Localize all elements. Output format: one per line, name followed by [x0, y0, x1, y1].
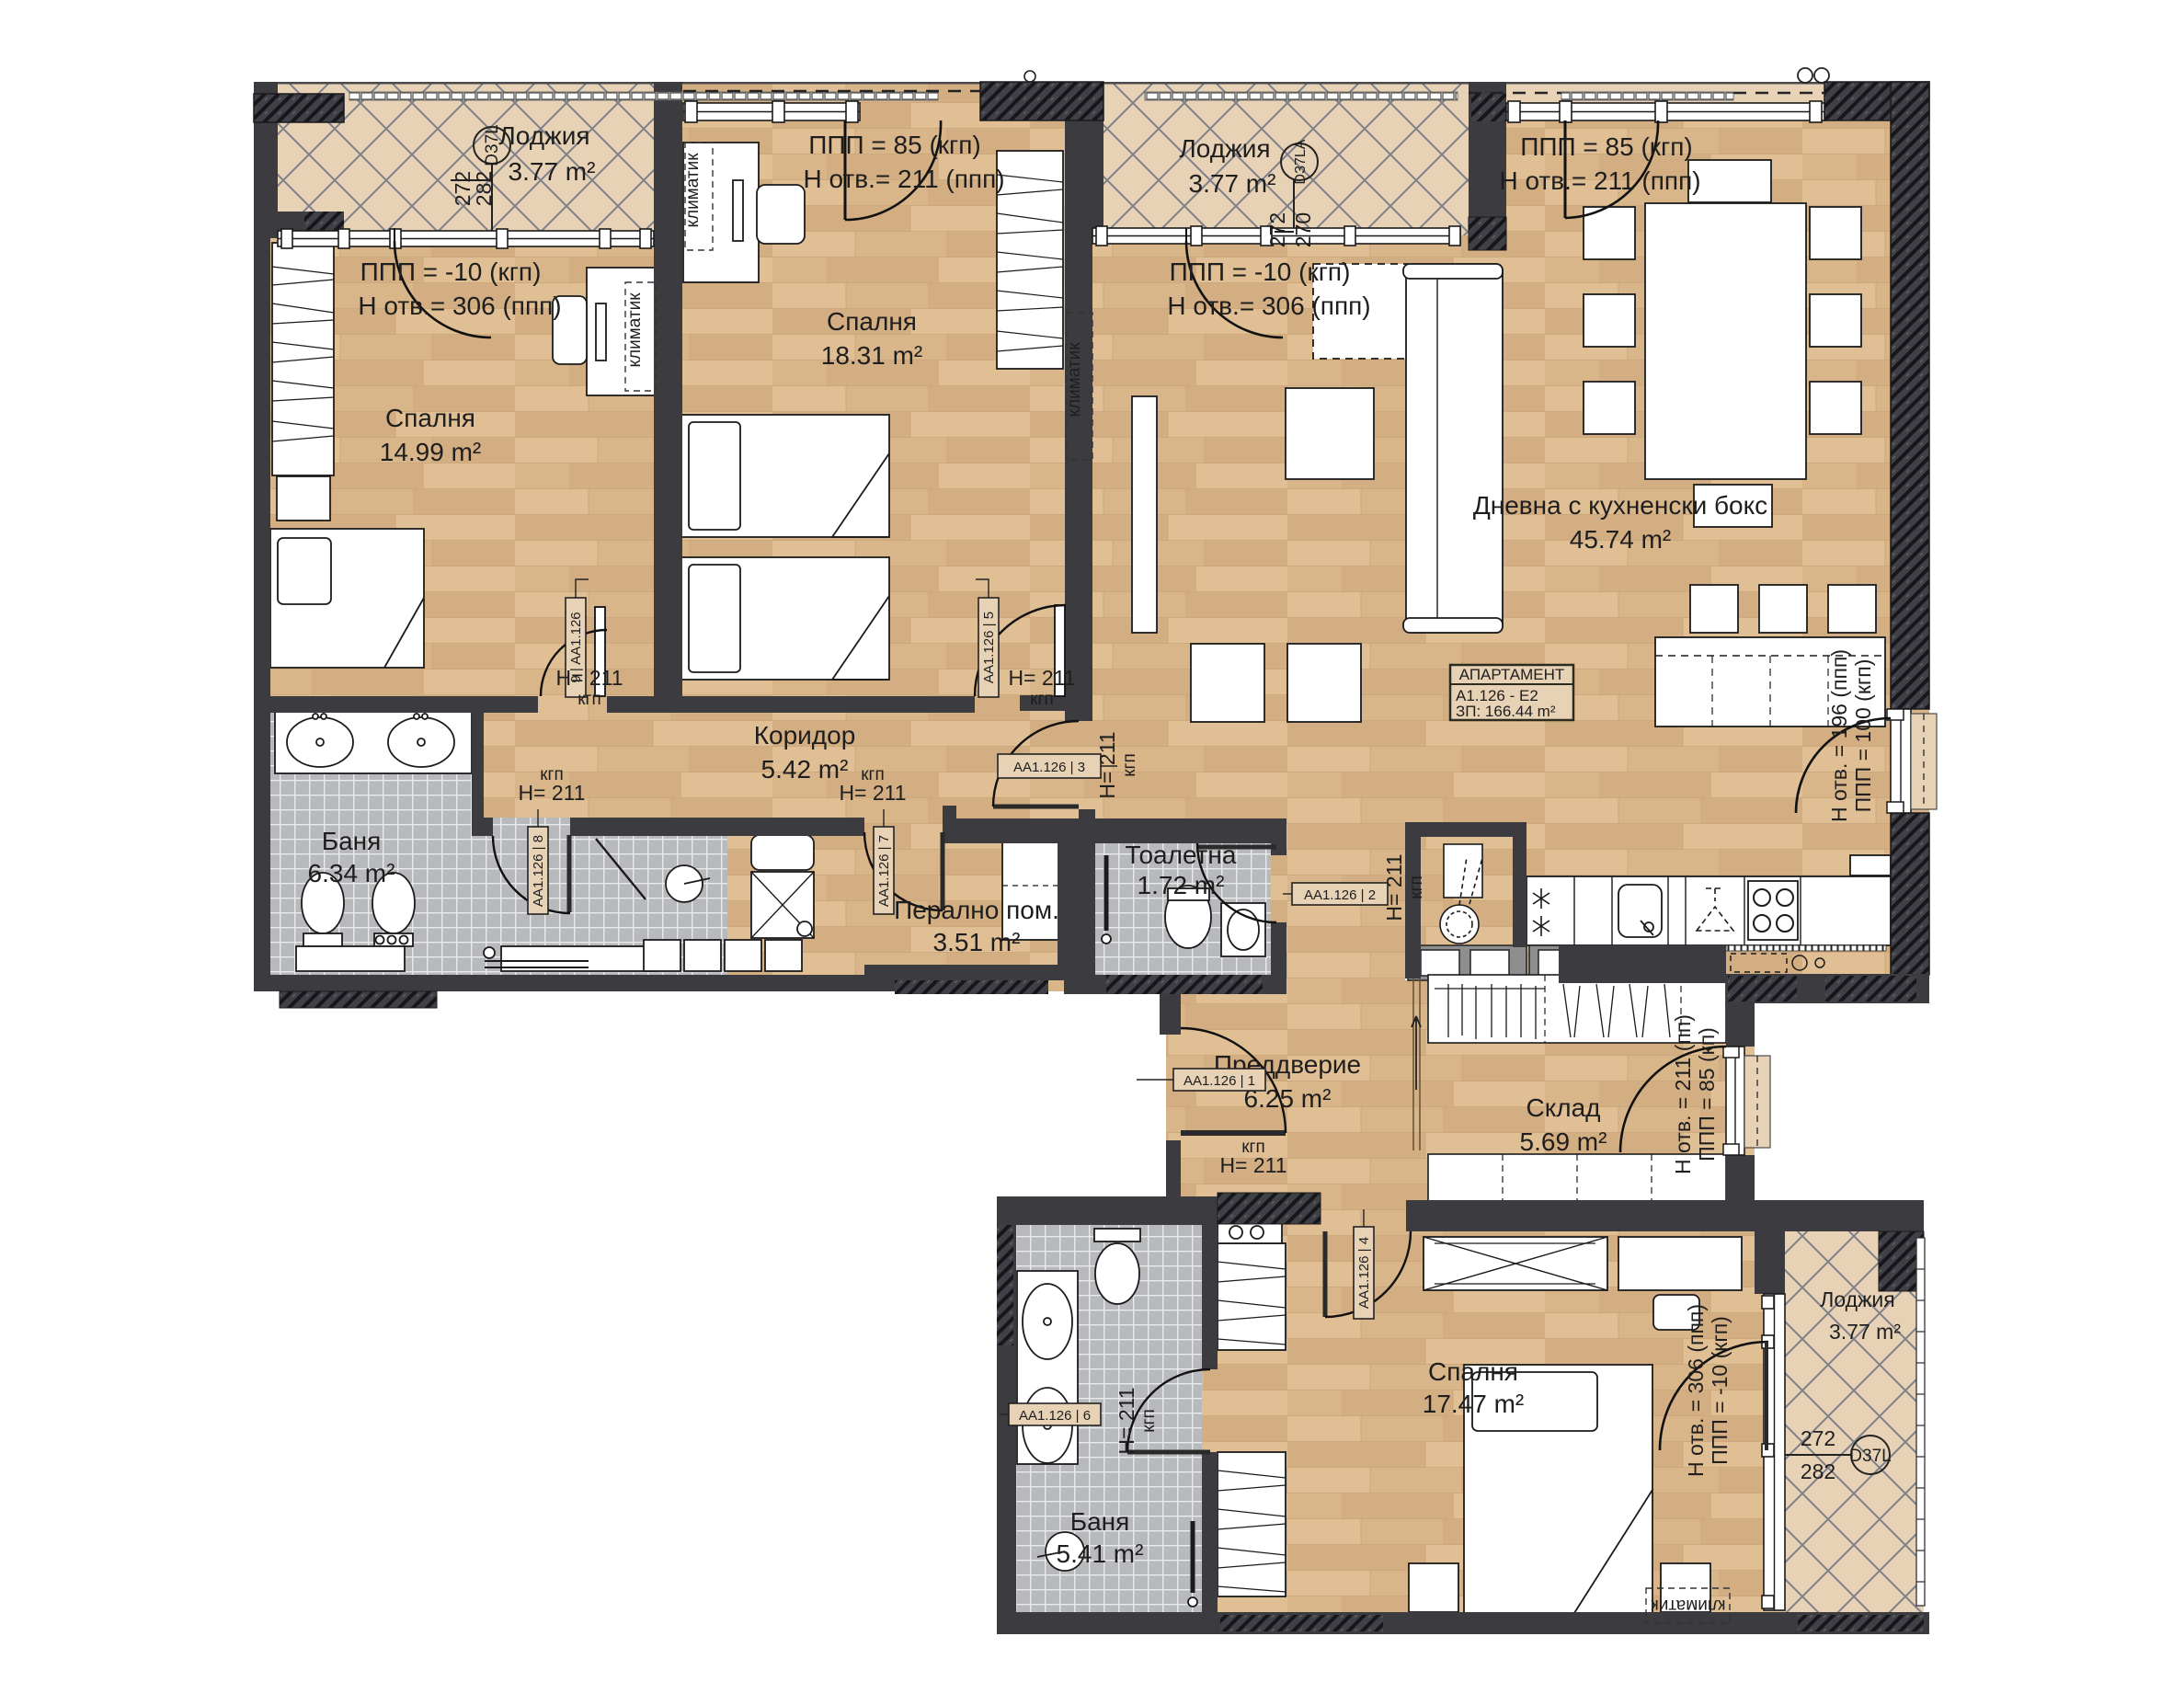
svg-text:кгп: кгп	[1407, 875, 1426, 899]
svg-text:кгп: кгп	[1139, 1409, 1159, 1433]
svg-text:Спалня: Спалня	[1428, 1357, 1518, 1386]
svg-text:282: 282	[472, 171, 496, 206]
svg-text:Баня: Баня	[1070, 1507, 1130, 1536]
svg-text:14.99 m²: 14.99 m²	[380, 438, 482, 466]
svg-text:AA1.126 | 2: AA1.126 | 2	[1304, 887, 1376, 903]
svg-text:климатик: климатик	[625, 292, 645, 368]
svg-text:H= 211: H= 211	[555, 666, 623, 690]
svg-text:3.51 m²: 3.51 m²	[933, 928, 1021, 956]
svg-text:кгп: кгп	[1120, 753, 1139, 777]
svg-text:D37L: D37L	[483, 124, 502, 166]
svg-text:Спалня: Спалня	[385, 404, 475, 432]
svg-text:Н отв. = 306 (ппп): Н отв. = 306 (ппп)	[1684, 1304, 1708, 1477]
svg-text:ППП = 85 (кгп): ППП = 85 (кгп)	[808, 131, 980, 159]
svg-text:Лоджия: Лоджия	[1820, 1287, 1895, 1311]
svg-text:18.31 m²: 18.31 m²	[821, 341, 923, 370]
svg-text:272: 272	[1265, 212, 1289, 247]
svg-text:климатик: климатик	[683, 153, 703, 228]
svg-text:270: 270	[1291, 212, 1315, 247]
svg-text:H= 211: H= 211	[1008, 666, 1075, 690]
svg-text:D37LA: D37LA	[1293, 139, 1309, 184]
svg-text:Н отв.= 211 (ппп): Н отв.= 211 (ппп)	[803, 165, 1004, 193]
svg-text:АПАРТАМЕНТ: АПАРТАМЕНТ	[1459, 666, 1565, 683]
svg-text:5.41 m²: 5.41 m²	[1057, 1539, 1144, 1568]
svg-text:AA1.126 | 7: AA1.126 | 7	[876, 835, 892, 907]
svg-text:3.77 m²: 3.77 m²	[509, 157, 596, 186]
svg-text:H= 211: H= 211	[1382, 853, 1406, 921]
svg-text:кгп: кгп	[1030, 690, 1054, 709]
svg-text:H= 211: H= 211	[1095, 731, 1119, 798]
svg-text:кгп: кгп	[577, 690, 601, 709]
svg-text:45.74 m²: 45.74 m²	[1570, 525, 1672, 554]
svg-text:Тоалетна: Тоалетна	[1126, 841, 1237, 869]
svg-text:282: 282	[1801, 1459, 1835, 1483]
svg-text:Н отв.= 211 (ппп): Н отв.= 211 (ппп)	[1499, 166, 1700, 195]
svg-text:Склад: Склад	[1526, 1093, 1600, 1122]
svg-text:AA1.126 | 6: AA1.126 | 6	[1019, 1408, 1091, 1424]
svg-text:AA1.126 | 1: AA1.126 | 1	[1183, 1073, 1255, 1089]
svg-text:D37L: D37L	[1849, 1447, 1891, 1466]
svg-text:Спалня: Спалня	[827, 307, 917, 336]
svg-text:272: 272	[1801, 1426, 1835, 1450]
svg-text:климатик: климатик	[1065, 342, 1084, 418]
svg-text:Лоджия: Лоджия	[498, 121, 589, 150]
svg-text:ППП = 85 (кп): ППП = 85 (кп)	[1695, 1027, 1719, 1161]
svg-text:климатик: климатик	[1651, 1596, 1726, 1615]
svg-text:H= 211: H= 211	[1219, 1153, 1286, 1177]
svg-text:Н отв.= 306 (ппп): Н отв.= 306 (ппп)	[358, 292, 561, 320]
svg-text:H= 211: H= 211	[839, 781, 906, 805]
svg-text:3.77 m²: 3.77 m²	[1189, 169, 1276, 198]
svg-text:Н отв. = 211 (пп): Н отв. = 211 (пп)	[1671, 1014, 1695, 1174]
svg-text:6.34 m²: 6.34 m²	[308, 859, 395, 887]
svg-text:ППП = -10 (кгп): ППП = -10 (кгп)	[1170, 257, 1351, 286]
svg-text:Н отв. = 196 (ппп): Н отв. = 196 (ппп)	[1827, 649, 1851, 822]
svg-text:Баня: Баня	[322, 827, 382, 855]
svg-text:H= 211: H= 211	[1115, 1387, 1138, 1454]
svg-text:ППП = -10 (кгп): ППП = -10 (кгп)	[1708, 1316, 1732, 1465]
svg-text:AA1.126 | 3: AA1.126 | 3	[1013, 760, 1085, 775]
svg-text:ЗП: 166.44 m²: ЗП: 166.44 m²	[1456, 703, 1556, 720]
svg-text:ППП = -10 (кгп): ППП = -10 (кгп)	[360, 257, 542, 286]
svg-text:3.77 m²: 3.77 m²	[1829, 1320, 1901, 1344]
svg-text:H= 211: H= 211	[518, 781, 585, 805]
svg-text:5.69 m²: 5.69 m²	[1520, 1127, 1607, 1156]
svg-text:Н отв.= 306 (ппп): Н отв.= 306 (ппп)	[1167, 292, 1370, 320]
svg-text:ППП = 100 (кгп): ППП = 100 (кгп)	[1851, 659, 1875, 813]
svg-text:Дневна с кухненски бокс: Дневна с кухненски бокс	[1473, 491, 1767, 520]
svg-text:AA1.126 | 8: AA1.126 | 8	[531, 835, 546, 907]
svg-text:Перално пом.: Перално пом.	[894, 896, 1059, 924]
svg-text:5.42 m²: 5.42 m²	[761, 755, 849, 784]
svg-text:ППП = 85 (кгп): ППП = 85 (кгп)	[1520, 132, 1692, 161]
svg-text:AA1.126 | 5: AA1.126 | 5	[981, 612, 997, 683]
svg-text:Лоджия: Лоджия	[1179, 134, 1270, 163]
svg-text:17.47 m²: 17.47 m²	[1423, 1390, 1525, 1418]
svg-text:Коридор: Коридор	[754, 721, 856, 750]
svg-text:1.72 m²: 1.72 m²	[1138, 871, 1225, 899]
svg-text:AA1.126 | 4: AA1.126 | 4	[1356, 1237, 1372, 1309]
